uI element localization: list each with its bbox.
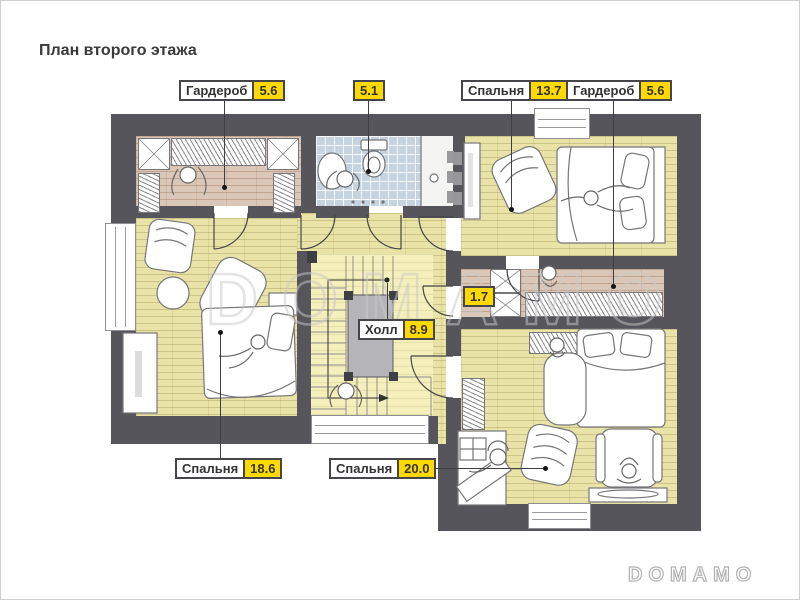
pillow	[620, 332, 653, 358]
pillow	[619, 195, 647, 230]
label-bedroom-left: Спальня 18.6	[175, 458, 282, 479]
pillow	[583, 332, 616, 358]
armchair	[488, 143, 560, 218]
label-wardrobe-left: Гардероб 5.6	[179, 80, 285, 101]
room-name: Гардероб	[568, 82, 639, 99]
room-area: 18.6	[243, 460, 280, 477]
room-area: 5.6	[252, 82, 282, 99]
room-area: 5.6	[639, 82, 669, 99]
room-area: 20.0	[397, 460, 434, 477]
room-area: 13.7	[529, 82, 566, 99]
label-closet-area: 1.7	[463, 286, 495, 307]
label-bathroom-area: 5.1	[353, 80, 385, 101]
side-table	[157, 277, 189, 309]
room-name: Гардероб	[181, 82, 252, 99]
leader-dot	[611, 284, 616, 289]
room-name: Спальня	[331, 460, 397, 477]
shower-drain	[430, 174, 438, 182]
page-title: План второго этажа	[39, 42, 197, 60]
leader-line	[387, 283, 388, 319]
toilet-tank	[361, 140, 387, 150]
lounge-chair	[544, 353, 586, 425]
person-figure	[542, 266, 557, 286]
leader-dot	[366, 169, 371, 174]
towel-rails	[447, 151, 462, 205]
person-figure	[172, 167, 206, 195]
leader-line	[224, 101, 225, 187]
floor-plan-page: План второго этажа	[0, 0, 800, 600]
room-name: Холл	[360, 321, 403, 338]
leader-line	[425, 468, 545, 469]
label-hall: Холл 8.9	[358, 319, 435, 340]
hooks	[351, 200, 384, 203]
leader-dot	[218, 330, 223, 335]
leader-line	[511, 101, 512, 209]
room-area: 8.9	[403, 321, 433, 338]
leader-dot	[222, 185, 227, 190]
label-bedroom-bottom: Спальня 20.0	[329, 458, 436, 479]
label-wardrobe-right: Гардероб 5.6	[566, 80, 672, 101]
leader-line	[368, 101, 369, 171]
plan-linework	[1, 1, 800, 600]
label-bedroom-top: Спальня 13.7	[461, 80, 568, 101]
leader-dot	[543, 466, 548, 471]
brand-logo: DOMAMO	[628, 564, 757, 587]
armchair	[519, 422, 580, 487]
tv	[135, 351, 142, 397]
leader-dot	[509, 207, 514, 212]
leader-line	[220, 335, 221, 458]
armchair	[144, 218, 197, 274]
room-name: Спальня	[463, 82, 529, 99]
room-name: Спальня	[177, 460, 243, 477]
tv	[468, 153, 473, 207]
leader-line	[613, 101, 614, 286]
